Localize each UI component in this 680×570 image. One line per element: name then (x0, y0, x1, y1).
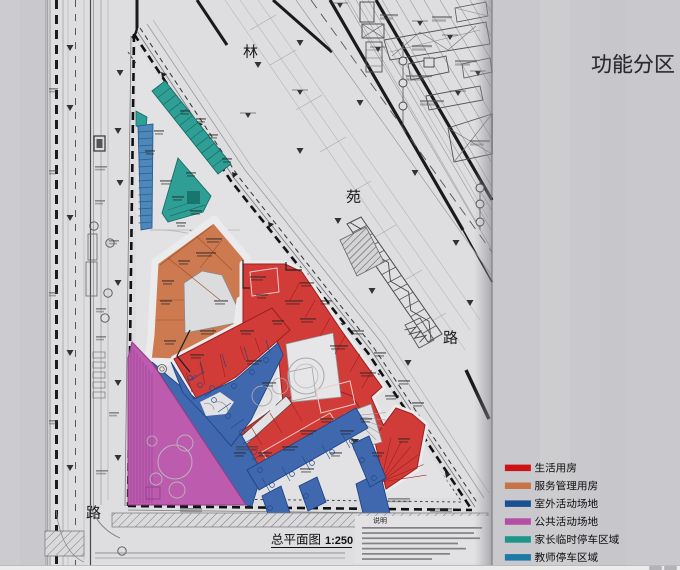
svg-text:1:250: 1:250 (325, 535, 353, 547)
